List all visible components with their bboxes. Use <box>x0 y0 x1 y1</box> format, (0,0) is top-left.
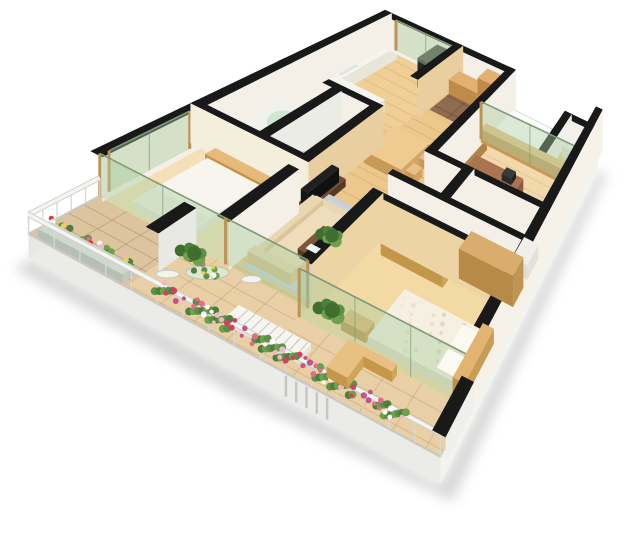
flower-bloom <box>242 326 248 332</box>
flower-bloom <box>250 341 255 346</box>
flower-bloom <box>411 303 416 308</box>
flower-bloom <box>388 405 394 411</box>
flower-bloom <box>209 310 213 314</box>
flower-bloom <box>252 333 258 339</box>
flower-bloom <box>387 415 392 420</box>
flower-bloom <box>400 415 404 419</box>
flower-bloom <box>382 410 387 415</box>
flower-bloom <box>307 359 313 365</box>
flower-bloom <box>171 287 177 293</box>
flower-bloom <box>240 334 244 338</box>
terrace-chair <box>156 270 179 278</box>
flower-bloom <box>219 317 224 322</box>
flower-bloom <box>300 363 305 368</box>
flower-bloom <box>402 295 406 299</box>
flower-bloom <box>378 397 384 403</box>
flower-bloom <box>361 392 367 398</box>
flower-bloom <box>229 325 235 331</box>
flower-bloom <box>212 320 216 324</box>
flower-bloom <box>439 331 442 334</box>
terrace-chair <box>241 276 261 283</box>
flower-bloom <box>310 371 316 377</box>
flower-bloom <box>212 275 215 278</box>
flower-bloom <box>191 304 196 309</box>
flower-bloom <box>350 393 354 397</box>
flower-bloom <box>297 352 303 358</box>
flower-bloom <box>366 397 372 403</box>
flower-bloom <box>440 321 445 326</box>
flower-bloom <box>277 355 282 360</box>
flower-bloom <box>224 320 230 326</box>
flower-bloom <box>372 402 376 406</box>
flower-bloom <box>273 350 278 355</box>
plant-foliage <box>325 303 340 318</box>
flower-bloom <box>377 407 381 411</box>
flower-bloom <box>279 346 285 352</box>
flower-foliage <box>402 408 410 416</box>
flower-bloom <box>442 313 446 317</box>
flower-bloom <box>368 390 373 395</box>
flower-bloom <box>205 305 210 310</box>
flower-bloom <box>313 364 318 369</box>
flower-bloom <box>283 358 289 364</box>
floor-plan-figure <box>0 0 643 552</box>
flower-bloom <box>201 311 207 317</box>
flower-bloom <box>199 301 205 307</box>
flower-bloom <box>196 297 200 301</box>
flower-bloom <box>202 271 206 275</box>
flower-bloom <box>399 313 402 316</box>
flower-bloom <box>233 318 238 323</box>
flower-bloom <box>318 369 322 373</box>
flower-bloom <box>163 290 168 295</box>
flower-bloom <box>270 339 276 345</box>
flower-bloom <box>431 313 435 317</box>
plant-foliage <box>187 246 201 260</box>
flower-bloom <box>214 312 220 318</box>
flower-bloom <box>410 313 413 316</box>
flower-bloom <box>211 265 215 269</box>
flower-bloom <box>162 280 168 286</box>
flower-bloom <box>400 303 405 308</box>
flower-bloom <box>291 355 295 359</box>
flower-bloom <box>430 322 435 327</box>
floor-plan-3d <box>0 0 643 552</box>
plant-foliage <box>325 229 338 242</box>
flower-bloom <box>303 356 307 360</box>
flower-bloom <box>322 380 326 384</box>
flower-bloom <box>182 296 186 300</box>
flower-bloom <box>263 342 267 346</box>
flower-foliage <box>191 268 197 274</box>
flower-bloom <box>173 298 179 304</box>
flower-bloom <box>351 384 357 390</box>
